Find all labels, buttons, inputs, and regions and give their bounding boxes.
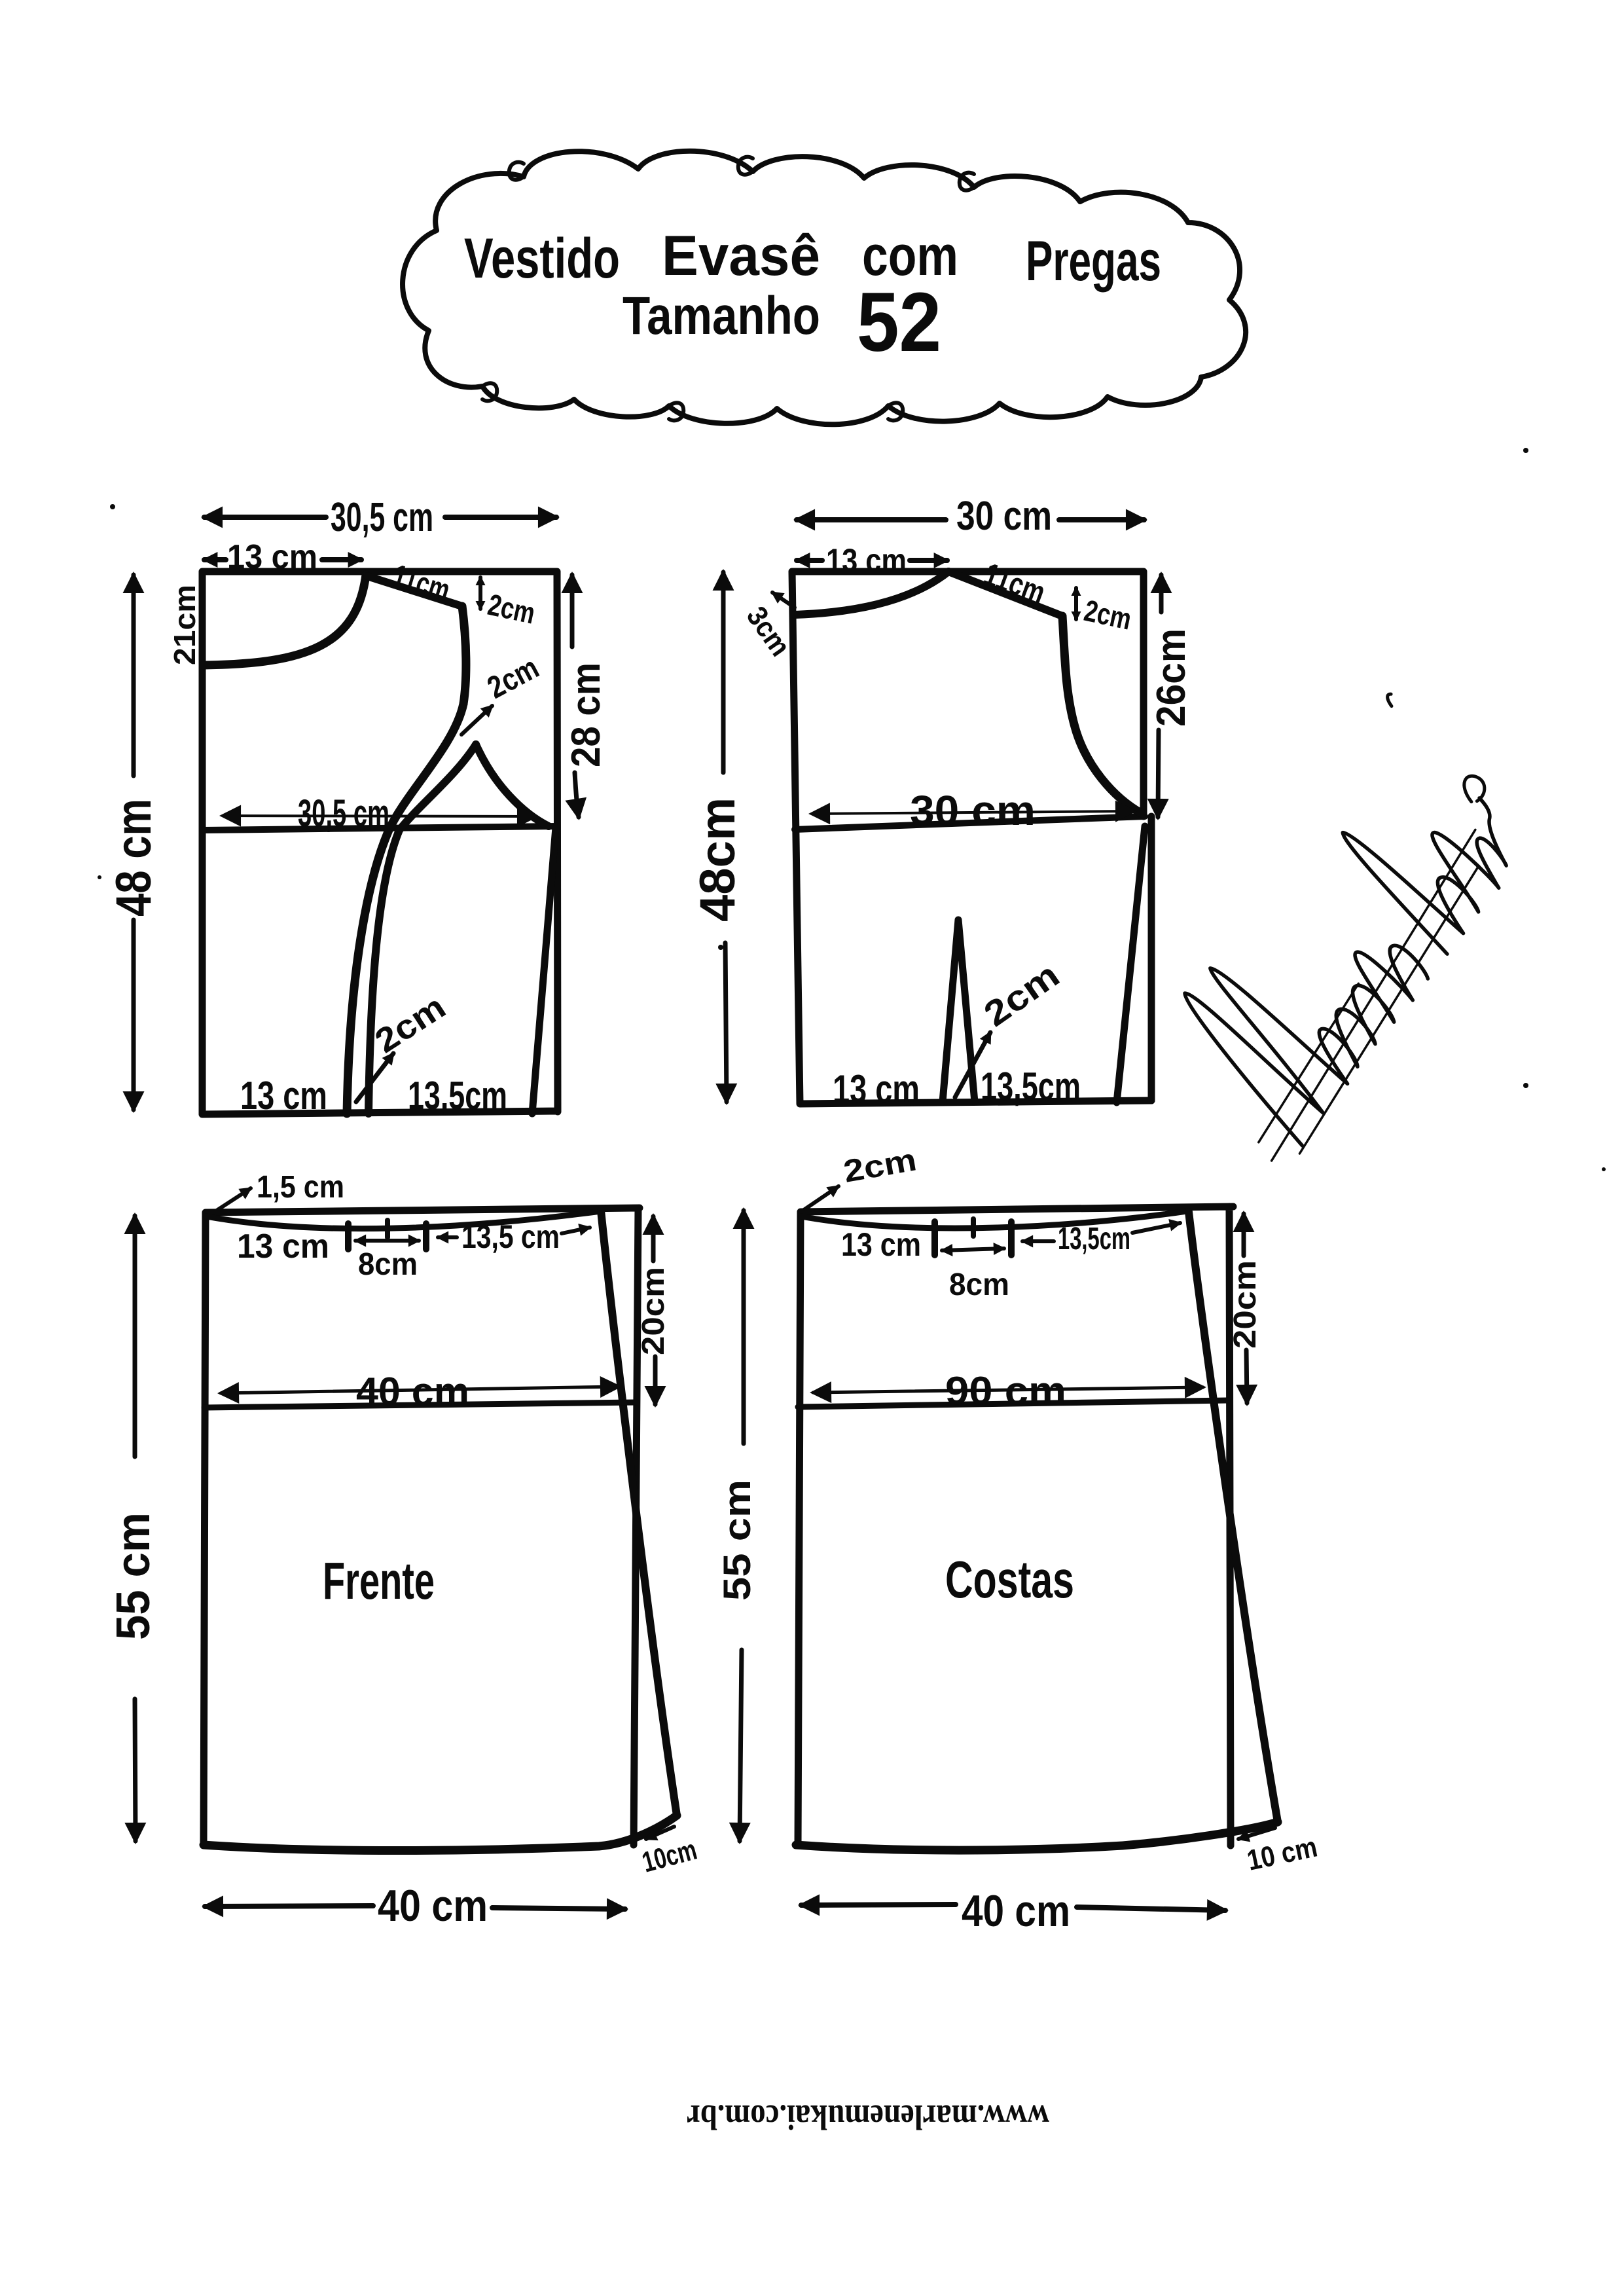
svg-text:Costas: Costas xyxy=(945,1550,1074,1609)
svg-text:2cm: 2cm xyxy=(1081,593,1134,636)
svg-text:48cm: 48cm xyxy=(690,797,746,922)
svg-text:40 cm: 40 cm xyxy=(962,1886,1070,1936)
svg-text:13,5cm: 13,5cm xyxy=(981,1065,1081,1108)
svg-text:Vestido: Vestido xyxy=(464,227,620,290)
svg-text:30,5 cm: 30,5 cm xyxy=(331,495,433,540)
svg-text:Tamanho: Tamanho xyxy=(623,286,820,346)
svg-text:11cm: 11cm xyxy=(979,557,1049,611)
svg-text:13 cm: 13 cm xyxy=(833,1067,920,1111)
svg-text:Evasê: Evasê xyxy=(662,225,820,287)
svg-text:13,5cm: 13,5cm xyxy=(1058,1222,1130,1256)
svg-text:21cm: 21cm xyxy=(168,585,202,665)
svg-text:2cm: 2cm xyxy=(977,955,1066,1034)
svg-text:26cm: 26cm xyxy=(1149,629,1194,727)
svg-text:52: 52 xyxy=(857,276,941,369)
svg-text:1,5 cm: 1,5 cm xyxy=(257,1170,344,1205)
svg-text:40 cm: 40 cm xyxy=(378,1881,488,1931)
svg-text:30 cm: 30 cm xyxy=(956,494,1052,539)
svg-text:20cm: 20cm xyxy=(1228,1260,1263,1349)
svg-text:55 cm: 55 cm xyxy=(107,1512,160,1640)
svg-text:13 cm: 13 cm xyxy=(237,1228,329,1266)
svg-text:8cm: 8cm xyxy=(949,1267,1009,1302)
svg-text:48 cm: 48 cm xyxy=(106,799,162,917)
svg-text:www.marlenemukai.com.br: www.marlenemukai.com.br xyxy=(687,2098,1049,2137)
svg-text:13,5 cm: 13,5 cm xyxy=(461,1218,560,1255)
svg-text:2cm: 2cm xyxy=(482,650,545,705)
svg-text:10 cm: 10 cm xyxy=(1244,1831,1320,1876)
svg-text:55 cm: 55 cm xyxy=(716,1480,759,1601)
svg-text:8cm: 8cm xyxy=(358,1247,418,1282)
svg-text:2cm: 2cm xyxy=(485,587,538,630)
svg-text:90 cm: 90 cm xyxy=(945,1369,1066,1413)
svg-text:11cm: 11cm xyxy=(389,558,454,608)
svg-text:3cm: 3cm xyxy=(740,601,797,663)
svg-text:30,5 cm: 30,5 cm xyxy=(298,792,389,835)
svg-text:2cm: 2cm xyxy=(369,988,452,1061)
svg-text:40 cm: 40 cm xyxy=(356,1370,469,1413)
svg-text:13 cm: 13 cm xyxy=(841,1226,921,1263)
svg-text:Pregas: Pregas xyxy=(1026,230,1161,293)
svg-text:2cm: 2cm xyxy=(841,1142,920,1190)
svg-text:13 cm: 13 cm xyxy=(240,1074,327,1118)
svg-text:20cm: 20cm xyxy=(636,1267,671,1355)
svg-text:28 cm: 28 cm xyxy=(564,663,609,767)
svg-text:13,5cm: 13,5cm xyxy=(408,1074,507,1118)
svg-text:30 cm: 30 cm xyxy=(910,787,1036,834)
svg-text:Frente: Frente xyxy=(323,1552,435,1610)
